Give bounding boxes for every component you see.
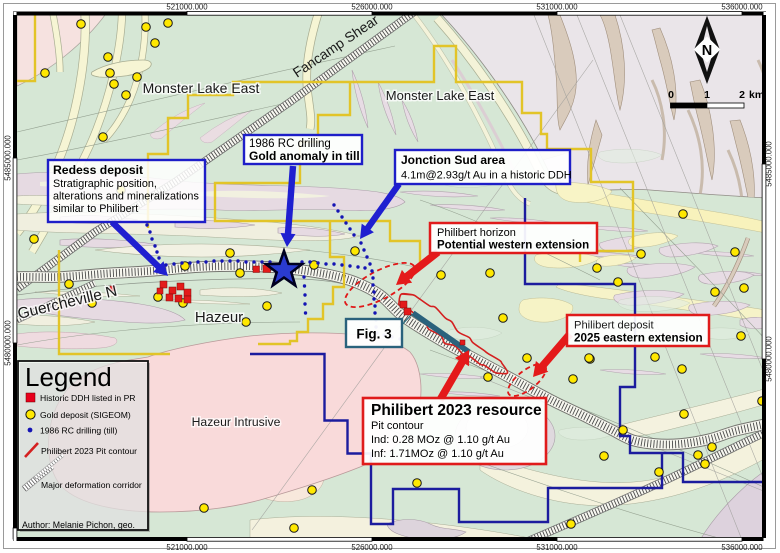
svg-text:531000.000: 531000.000 [536,3,578,12]
svg-text:1: 1 [704,89,710,101]
svg-text:521000.000: 521000.000 [166,3,208,12]
svg-text:Pit contour: Pit contour [371,420,424,432]
svg-text:Monster Lake East: Monster Lake East [143,80,260,96]
svg-text:similar to Philibert: similar to Philibert [53,203,138,215]
svg-text:5480000.000: 5480000.000 [4,320,13,366]
svg-text:Philibert 2023 resource: Philibert 2023 resource [371,402,542,419]
svg-text:536000.000: 536000.000 [721,543,763,552]
svg-text:Gold deposit (SIGEOM): Gold deposit (SIGEOM) [40,410,131,420]
svg-text:Fig. 3: Fig. 3 [356,327,392,342]
svg-text:521000.000: 521000.000 [166,543,208,552]
svg-text:Philibert 2023 Pit contour: Philibert 2023 Pit contour [41,446,137,456]
svg-text:531000.000: 531000.000 [536,543,578,552]
svg-text:Monster Lake East: Monster Lake East [386,88,495,103]
svg-text:km: km [749,89,764,101]
svg-text:Historic DDH listed in PR: Historic DDH listed in PR [40,393,136,403]
svg-text:5485000.000: 5485000.000 [4,135,13,181]
svg-text:526000.000: 526000.000 [351,3,393,12]
svg-text:Legend: Legend [25,362,112,392]
svg-text:4.1m@2.93g/t Au in a historic: 4.1m@2.93g/t Au in a historic DDH [401,170,572,182]
svg-text:Philibert deposit: Philibert deposit [574,320,654,332]
svg-text:Philibert horizon: Philibert horizon [437,227,516,239]
svg-text:2: 2 [739,89,745,101]
svg-text:Inf: 1.71MOz @ 1.10 g/t Au: Inf: 1.71MOz @ 1.10 g/t Au [371,448,504,460]
svg-text:Major deformation corridor: Major deformation corridor [41,480,142,490]
svg-text:Author: Melanie Pichon, geo.: Author: Melanie Pichon, geo. [22,520,135,530]
svg-text:Hazeur Intrusive: Hazeur Intrusive [192,415,281,429]
svg-text:5485000.000: 5485000.000 [765,141,774,187]
svg-text:536000.000: 536000.000 [721,3,763,12]
svg-text:Potential western extension: Potential western extension [437,240,589,252]
svg-text:526000.000: 526000.000 [351,543,393,552]
svg-text:Hazeur: Hazeur [195,309,243,326]
svg-text:2025 eastern extension: 2025 eastern extension [574,332,703,345]
svg-text:1986 RC drilling (till): 1986 RC drilling (till) [40,426,118,436]
svg-text:Redess deposit: Redess deposit [53,163,143,177]
svg-text:N: N [702,43,712,59]
svg-text:5480000.000: 5480000.000 [765,336,774,382]
svg-text:0: 0 [668,89,674,101]
svg-text:Jonction Sud area: Jonction Sud area [401,153,505,167]
svg-text:alterations and mineralization: alterations and mineralizations [53,191,199,203]
svg-text:Stratigraphic position,: Stratigraphic position, [53,178,157,190]
svg-text:Gold anomaly in till: Gold anomaly in till [249,149,360,163]
svg-text:Ind: 0.28 MOz @ 1.10 g/t Au: Ind: 0.28 MOz @ 1.10 g/t Au [371,434,510,446]
